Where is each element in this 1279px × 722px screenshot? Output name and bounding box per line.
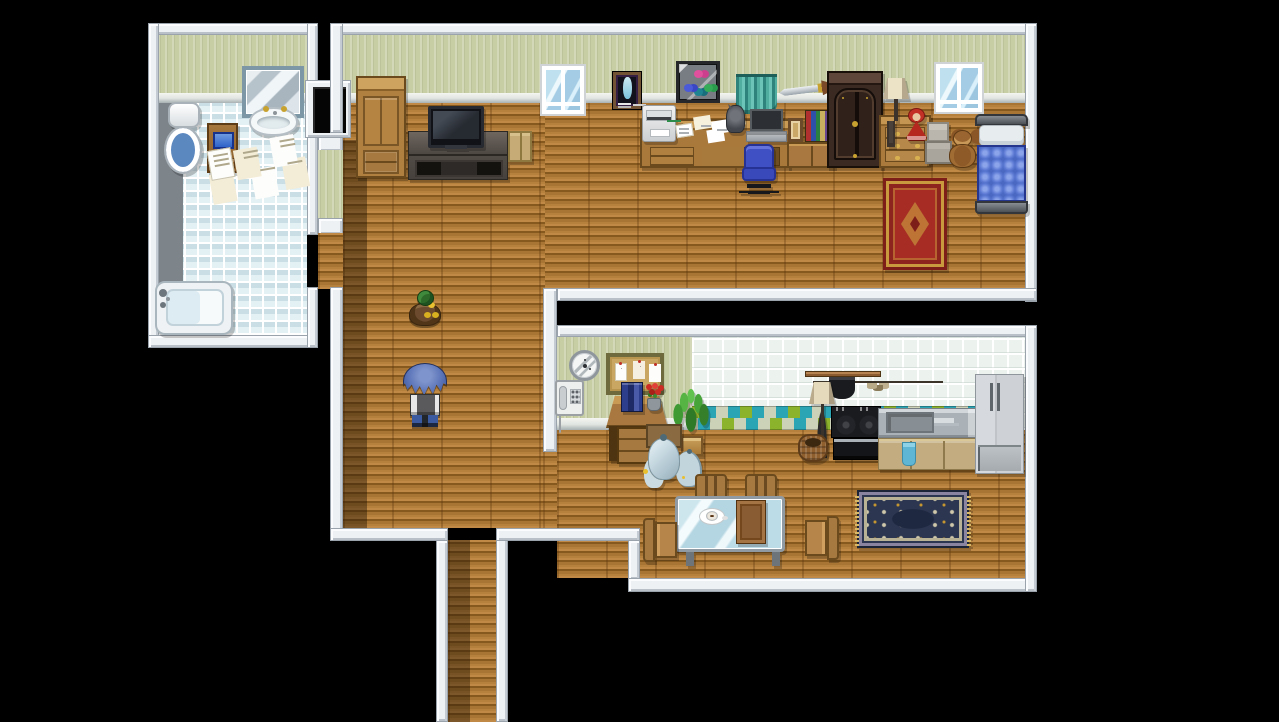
glass-dining-table[interactable]: [675, 496, 785, 552]
toilet[interactable]: [164, 102, 204, 179]
single-bed[interactable]: [975, 114, 1028, 217]
scattered-papers[interactable]: [203, 145, 343, 205]
television[interactable]: [428, 106, 484, 148]
printer[interactable]: [642, 105, 676, 142]
blue-office-chair[interactable]: [741, 144, 777, 197]
bathroom-sink[interactable]: [249, 107, 298, 136]
wall-phone[interactable]: [555, 380, 584, 416]
discarded-box: [646, 424, 682, 448]
corridor-wall-shadow: [448, 540, 470, 722]
gargoyle-figurine[interactable]: [726, 105, 745, 133]
corridor-east-wall: [496, 528, 508, 722]
main-room-west-wall-upper: [330, 23, 343, 133]
gas-stove[interactable]: [831, 406, 881, 462]
bathroom-south-wall: [148, 335, 318, 348]
bathroom-north-wall: [148, 23, 318, 35]
wall-poster[interactable]: [612, 71, 642, 110]
butterfly-display-case[interactable]: [676, 61, 720, 103]
player-torso: [410, 394, 440, 416]
main-room-north-wall: [330, 23, 1037, 35]
window-right: [934, 62, 984, 114]
bathroom-east-wall-lower: [307, 287, 318, 348]
photo-frame: [788, 118, 803, 142]
red-ornate-rug[interactable]: [883, 178, 947, 270]
main-room-west-wall-lower: [330, 287, 343, 540]
bathtub[interactable]: [155, 281, 233, 335]
dining-chair-east[interactable]: [803, 512, 839, 568]
player-character[interactable]: [403, 363, 447, 427]
book-on-table[interactable]: [736, 500, 766, 544]
storage-box[interactable]: [508, 131, 532, 162]
wicker-basket[interactable]: [798, 434, 828, 462]
bed-footboard: [975, 201, 1028, 214]
bathroom-doorway-floor: [318, 233, 343, 289]
garbage-bag-pile[interactable]: [636, 422, 696, 488]
main-room-south-wall: [557, 288, 1037, 301]
kitchen-east-wall: [1025, 325, 1037, 592]
dining-west-wall-stub: [628, 540, 640, 580]
wall-clock[interactable]: [569, 350, 600, 381]
red-flower-pot[interactable]: [643, 384, 665, 412]
kitchen-doorway-floor: [543, 450, 557, 528]
window-latch-icon: [561, 95, 565, 102]
window-sill: [544, 102, 582, 106]
corridor-west-wall: [436, 540, 448, 722]
books-on-bureau[interactable]: [621, 382, 643, 412]
navy-persian-rug[interactable]: [857, 490, 969, 548]
hallway-wall-shadow: [343, 140, 367, 528]
coffee-cup-and-saucer[interactable]: [699, 504, 727, 526]
light-wood-wardrobe[interactable]: [356, 76, 406, 178]
bed-blue-quilt: [977, 145, 1026, 202]
game-map-canvas[interactable]: [0, 0, 1279, 722]
kitchen-north-wall: [557, 325, 1037, 337]
window-left: [540, 64, 586, 116]
passage-south-wall: [496, 528, 640, 541]
dark-ornate-wardrobe[interactable]: [827, 71, 883, 168]
hanging-towel: [902, 442, 916, 466]
kitchen-counter-with-sink[interactable]: [878, 408, 977, 470]
window-latch-icon: [957, 93, 961, 100]
duck-npc[interactable]: [407, 290, 443, 328]
counter-cabinets: [878, 438, 977, 470]
laptop-computer[interactable]: [746, 109, 787, 143]
kitchen-west-wall: [543, 288, 557, 452]
dining-south-wall: [628, 578, 1037, 592]
hallway-south-wall: [330, 528, 448, 541]
refrigerator[interactable]: [975, 374, 1024, 474]
bed-pillow: [979, 125, 1024, 146]
dining-chair-west[interactable]: [643, 514, 679, 570]
player-legs: [412, 415, 438, 427]
window-sill: [938, 100, 980, 104]
teddy-bear[interactable]: [947, 130, 978, 170]
